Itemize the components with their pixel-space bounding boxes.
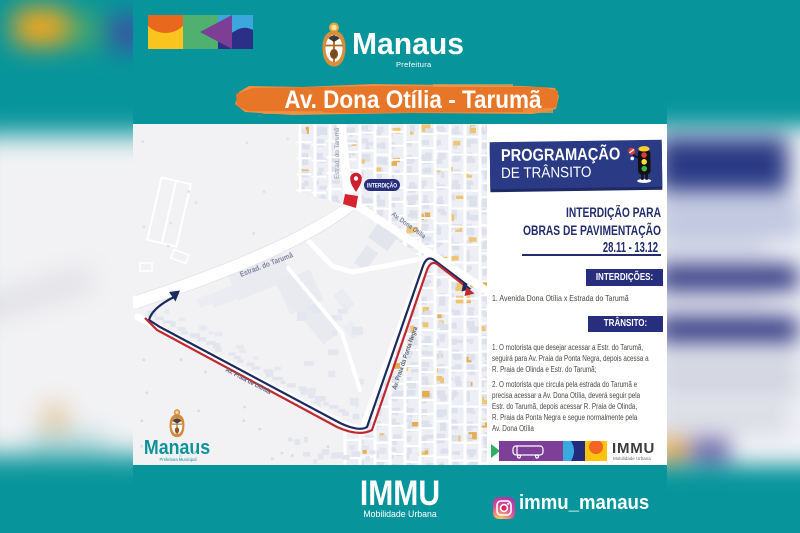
svg-text:Estrad. do Tarumã: Estrad. do Tarumã — [334, 127, 341, 179]
svg-text:INTERDIÇÃO: INTERDIÇÃO — [367, 183, 397, 190]
svg-text:Manaus: Manaus — [144, 437, 210, 459]
svg-text:Prefeitura Municipal: Prefeitura Municipal — [159, 457, 196, 462]
